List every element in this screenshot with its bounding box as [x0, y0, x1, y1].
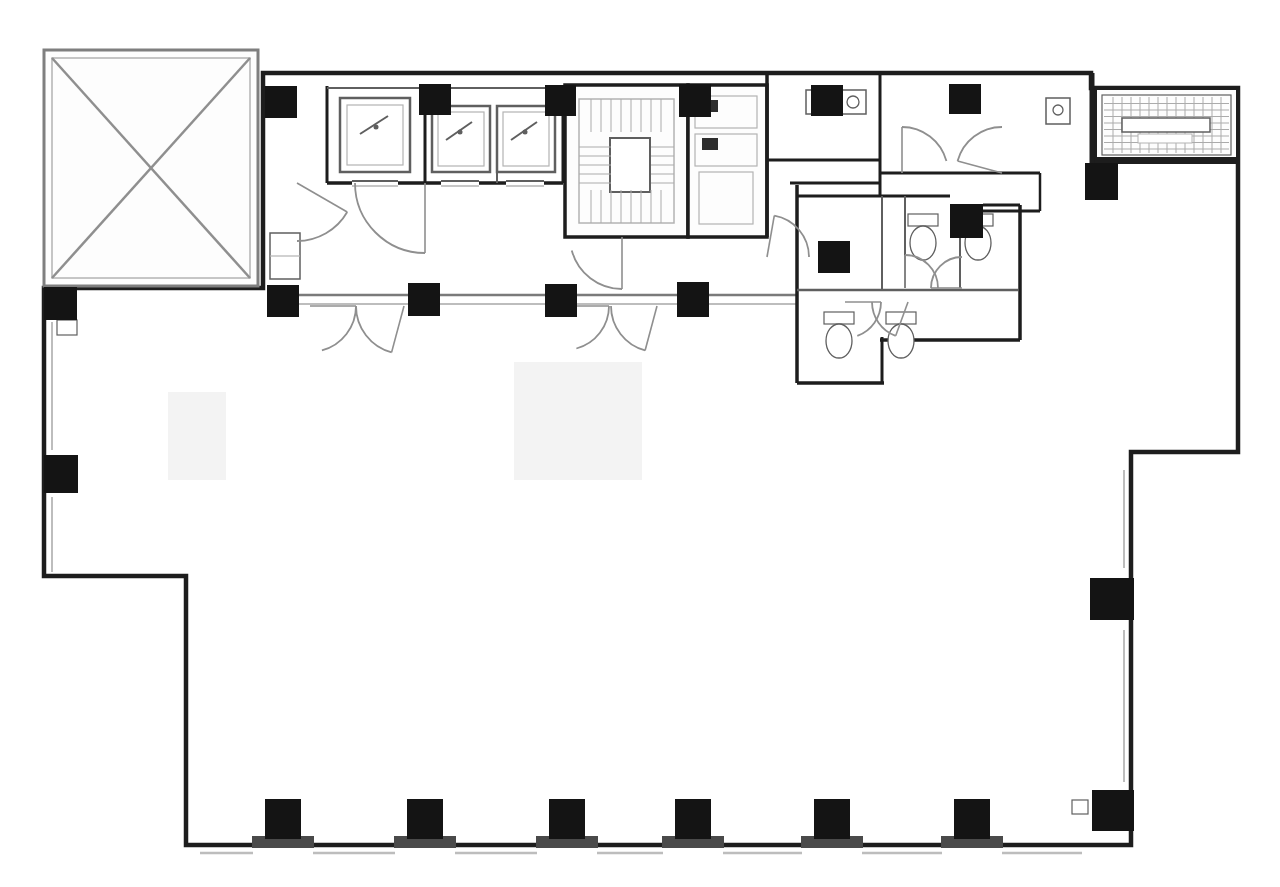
toilet-tank	[824, 312, 854, 324]
column	[1092, 790, 1134, 831]
elevator-glyph-dot	[523, 130, 528, 135]
column	[545, 85, 576, 116]
elevator-glyph-dot	[458, 130, 463, 135]
machine-unit	[1138, 134, 1192, 143]
scan-page	[0, 0, 1280, 887]
column	[1085, 163, 1118, 200]
scan-artifact	[514, 362, 642, 480]
toilet-bowl	[888, 324, 914, 358]
toilet-tank	[908, 214, 938, 226]
column	[950, 204, 983, 238]
column	[1090, 578, 1134, 620]
scan-artifact	[168, 392, 226, 480]
toilet-bowl	[826, 324, 852, 358]
column	[954, 799, 990, 839]
column	[677, 282, 709, 317]
shaft-duct	[702, 138, 718, 150]
column	[679, 84, 711, 117]
column	[265, 799, 301, 839]
column	[675, 799, 711, 839]
toilet-bowl	[910, 226, 936, 260]
column	[44, 455, 78, 493]
elevator-glyph-dot	[374, 125, 379, 130]
machine-unit	[1122, 118, 1210, 132]
column	[265, 86, 297, 118]
column	[814, 799, 850, 839]
sink-fixture	[840, 90, 866, 114]
wall-notch	[57, 320, 77, 335]
column	[44, 287, 77, 320]
floorplan-svg	[0, 0, 1280, 887]
column	[949, 84, 981, 114]
column	[407, 799, 443, 839]
column	[818, 241, 850, 273]
column	[267, 285, 299, 317]
column	[419, 84, 451, 115]
column	[811, 85, 843, 116]
elevator-car	[432, 106, 490, 172]
column	[408, 283, 440, 316]
stair-landing	[610, 138, 650, 192]
column	[549, 799, 585, 839]
wall-notch	[1072, 800, 1088, 814]
sink-fixture	[1046, 98, 1070, 124]
elevator-car	[340, 98, 410, 172]
column	[545, 284, 577, 317]
